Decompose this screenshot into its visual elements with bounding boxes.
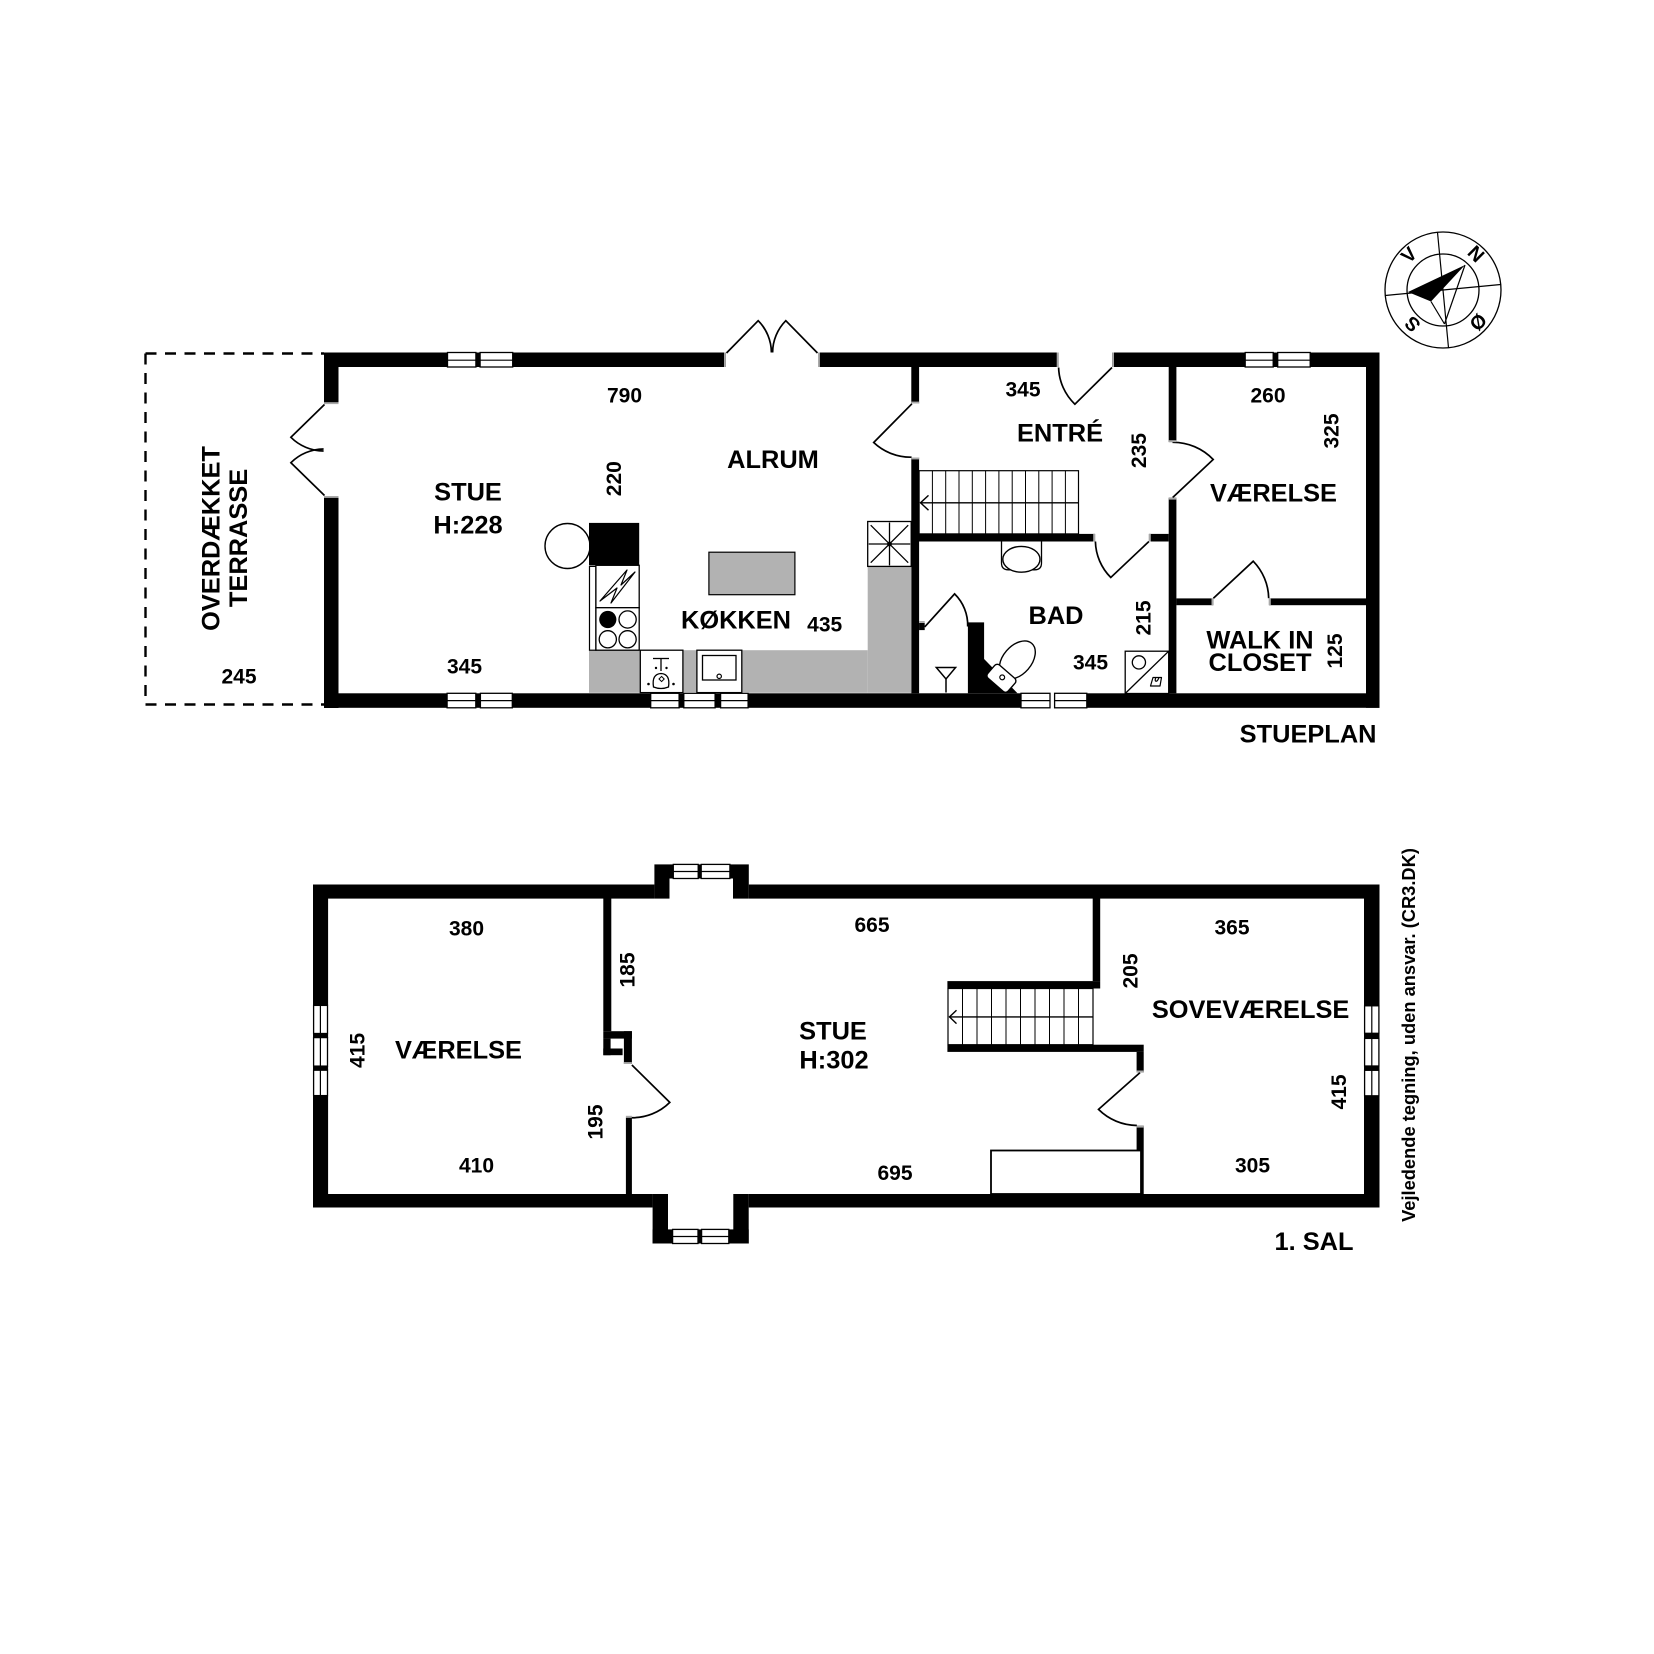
svg-text:345: 345	[447, 655, 482, 678]
svg-text:415: 415	[347, 1033, 370, 1068]
svg-text:215: 215	[1133, 600, 1156, 635]
svg-text:345: 345	[1073, 652, 1108, 675]
svg-text:345: 345	[1005, 379, 1040, 402]
svg-text:365: 365	[1214, 917, 1249, 940]
svg-text:790: 790	[607, 385, 642, 408]
svg-text:CLOSET: CLOSET	[1209, 649, 1312, 677]
svg-text:SOVEVÆRELSE: SOVEVÆRELSE	[1152, 996, 1350, 1024]
svg-text:OVERDÆKKET: OVERDÆKKET	[198, 446, 226, 631]
svg-text:435: 435	[807, 614, 842, 637]
svg-text:185: 185	[617, 952, 640, 987]
svg-text:235: 235	[1128, 433, 1151, 468]
svg-text:325: 325	[1321, 413, 1344, 448]
svg-text:380: 380	[449, 918, 484, 941]
svg-text:415: 415	[1328, 1074, 1351, 1109]
svg-text:STUE: STUE	[799, 1017, 867, 1045]
svg-text:410: 410	[459, 1155, 494, 1178]
svg-text:205: 205	[1120, 953, 1143, 988]
svg-text:125: 125	[1324, 633, 1347, 668]
svg-text:TERRASSE: TERRASSE	[225, 469, 253, 607]
svg-text:VÆRELSE: VÆRELSE	[1210, 480, 1337, 508]
svg-text:STUEPLAN: STUEPLAN	[1240, 721, 1377, 749]
svg-text:Vejledende tegning, uden ansva: Vejledende tegning, uden ansvar. (CR3.DK…	[1398, 848, 1419, 1222]
svg-text:ENTRÉ: ENTRÉ	[1017, 419, 1103, 448]
svg-text:H:228: H:228	[433, 512, 502, 540]
svg-text:305: 305	[1235, 1155, 1270, 1178]
svg-text:ALRUM: ALRUM	[727, 446, 819, 474]
svg-text:260: 260	[1250, 385, 1285, 408]
svg-text:1. SAL: 1. SAL	[1274, 1228, 1353, 1256]
svg-text:220: 220	[603, 461, 626, 496]
svg-text:195: 195	[585, 1104, 608, 1139]
svg-text:STUE: STUE	[434, 479, 502, 507]
svg-text:KØKKEN: KØKKEN	[681, 607, 791, 635]
svg-text:BAD: BAD	[1028, 602, 1083, 630]
svg-text:245: 245	[221, 666, 256, 689]
svg-text:665: 665	[854, 914, 889, 937]
svg-text:VÆRELSE: VÆRELSE	[395, 1037, 522, 1065]
svg-text:695: 695	[877, 1162, 912, 1185]
svg-text:H:302: H:302	[799, 1046, 868, 1074]
